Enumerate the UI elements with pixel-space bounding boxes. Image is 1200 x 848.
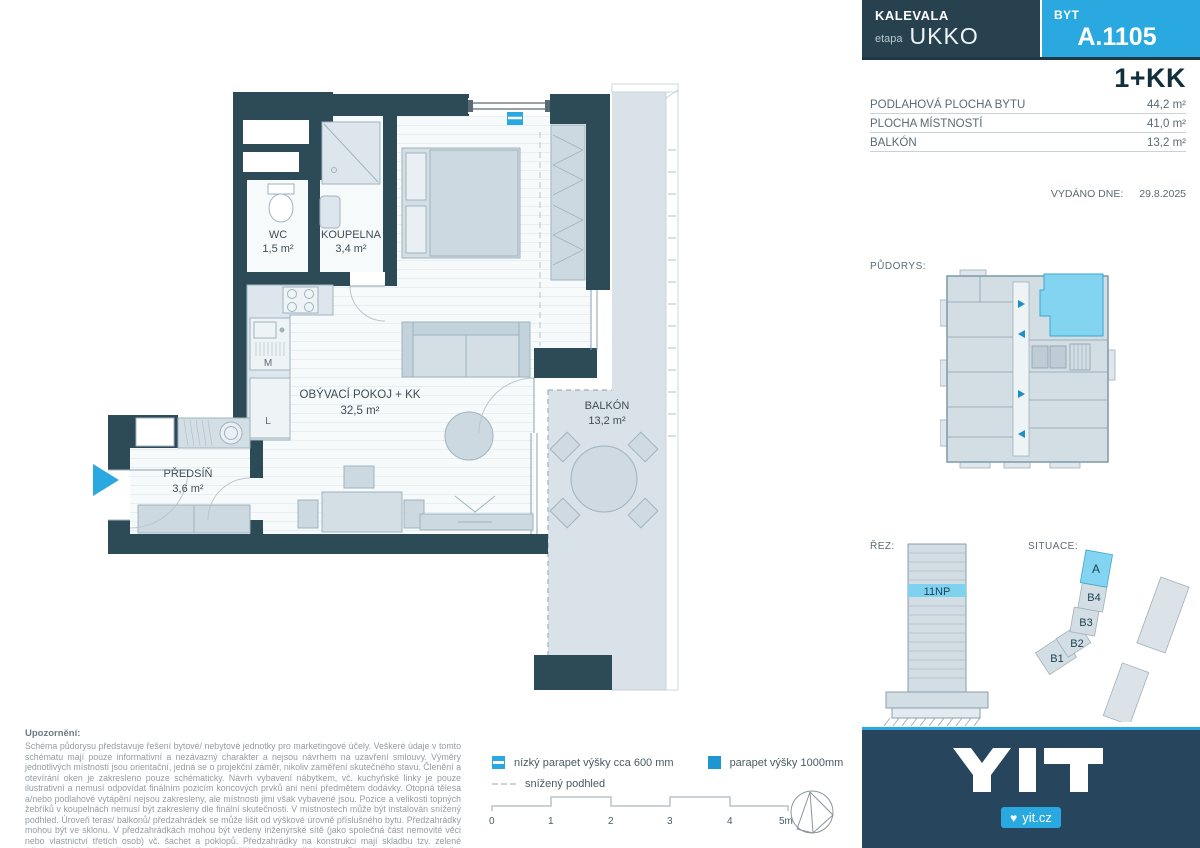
website-link[interactable]: ♥ yit.cz: [1001, 807, 1061, 828]
pudorys-label: PŮDORYS:: [870, 261, 926, 272]
kitchen-label-m: M: [264, 358, 272, 369]
situace-building: [1103, 663, 1148, 722]
row-value: 41,0 m²: [1147, 118, 1186, 130]
website-text: yit.cz: [1022, 810, 1052, 825]
table-row: BALKÓN 13,2 m²: [870, 133, 1186, 152]
room-area-predsin: 3,6 m²: [172, 483, 204, 495]
row-value: 44,2 m²: [1147, 99, 1186, 111]
building-label-b3: B3: [1079, 617, 1092, 629]
heart-icon: ♥: [1010, 812, 1017, 824]
disclaimer-body: Schéma půdorysu představuje řešení bytov…: [25, 741, 461, 848]
legend-low-parapet: nízký parapet výšky cca 600 mm: [514, 757, 674, 769]
room-label-predsin: PŘEDSÍŇ: [164, 467, 213, 480]
shaft: [243, 152, 299, 172]
washbasin: [320, 196, 340, 228]
scale-tick: 5m: [779, 816, 793, 827]
scale-tick: 2: [608, 816, 614, 827]
room-area-balkon: 13,2 m²: [588, 415, 626, 427]
sofa: [402, 322, 530, 377]
toilet: [269, 194, 293, 222]
table-row: PODLAHOVÁ PLOCHA BYTU 44,2 m²: [870, 95, 1186, 114]
scale-ticks: 0 1 2 3 4 5m: [489, 816, 793, 827]
disclaimer-title: Upozornění:: [25, 728, 461, 739]
building-label-b1: B1: [1050, 653, 1063, 665]
info-panel: KALEVALA etapaUKKO BYT A.1105 1+KK PODLA…: [862, 0, 1200, 848]
wardrobe: [551, 125, 585, 280]
yit-logo: [946, 746, 1116, 794]
toilet-tank: [268, 184, 294, 194]
room-label-wc: WC: [269, 229, 287, 241]
scale-tick: 3: [667, 816, 673, 827]
scale-tick: 4: [727, 816, 733, 827]
disclaimer: Upozornění: Schéma půdorysu představuje …: [25, 728, 461, 848]
shaft: [243, 120, 309, 144]
apartment-card-sheet: WC 1,5 m² KOUPELNA 3,4 m² OBÝVACÍ POKOJ …: [0, 0, 1200, 848]
byt-label: BYT: [1054, 8, 1080, 22]
unit-number: A.1105: [1042, 23, 1192, 52]
hall-cabinet: [136, 418, 174, 446]
brand-footer: ♥ yit.cz: [862, 727, 1200, 848]
room-area-koupelna: 3,4 m²: [335, 243, 367, 255]
parapet-icon: [708, 756, 721, 769]
building-label-b2: B2: [1070, 638, 1083, 650]
floor-number: 11NP: [924, 586, 951, 598]
building-label-b4: B4: [1087, 592, 1100, 604]
row-label: PLOCHA MÍSTNOSTÍ: [870, 118, 982, 130]
floor-plan: WC 1,5 m² KOUPELNA 3,4 m² OBÝVACÍ POKOJ …: [0, 0, 862, 726]
bed: [402, 148, 520, 258]
row-label: PODLAHOVÁ PLOCHA BYTU: [870, 99, 1025, 111]
room-label-koupelna: KOUPELNA: [321, 229, 382, 241]
scale-tick: 1: [548, 816, 554, 827]
issued-label: VYDÁNO DNE:: [1051, 188, 1123, 200]
header-divider: [862, 57, 1200, 60]
ground-hatch: [884, 718, 980, 726]
room-area-obyvaci: 32,5 m²: [341, 405, 380, 417]
building-label-a: A: [1092, 562, 1100, 576]
etapa-value: UKKO: [910, 23, 979, 49]
fridge: [250, 378, 290, 438]
room-label-balkon: BALKÓN: [585, 399, 630, 412]
scale-bar: 0 1 2 3 4 5m: [482, 786, 862, 848]
situace-map: A B4 B3 B2 B1: [1030, 548, 1197, 722]
row-value: 13,2 m²: [1147, 137, 1186, 149]
issued-value: 29.8.2025: [1139, 188, 1186, 200]
room-area-wc: 1,5 m²: [262, 243, 294, 255]
table-row: PLOCHA MÍSTNOSTÍ 41,0 m²: [870, 114, 1186, 133]
situace-building: [1137, 577, 1189, 653]
row-label: BALKÓN: [870, 137, 917, 149]
issued-date: VYDÁNO DNE:29.8.2025: [1051, 188, 1186, 200]
area-table: PODLAHOVÁ PLOCHA BYTU 44,2 m² PLOCHA MÍS…: [870, 95, 1186, 152]
etapa-label: etapa: [875, 33, 903, 45]
project-name: KALEVALA: [875, 8, 949, 23]
pudorys-thumbnail: [940, 266, 1120, 472]
lowered-ceiling-icon: [492, 783, 516, 785]
armchair: [445, 412, 493, 460]
washing-machine: [220, 422, 242, 444]
rez-section: 11NP: [880, 536, 998, 728]
kitchen-label-l: L: [265, 416, 271, 427]
low-parapet-icon: [492, 756, 505, 769]
layout-type: 1+KK: [1114, 63, 1186, 94]
unit-header: BYT A.1105: [1042, 0, 1200, 57]
scale-tick: 0: [489, 816, 495, 827]
north-compass: [791, 791, 833, 833]
legend-parapet: parapet výšky 1000mm: [730, 757, 844, 769]
room-label-obyvaci: OBÝVACÍ POKOJ + KK: [300, 388, 421, 401]
project-header: KALEVALA etapaUKKO: [862, 0, 1040, 57]
